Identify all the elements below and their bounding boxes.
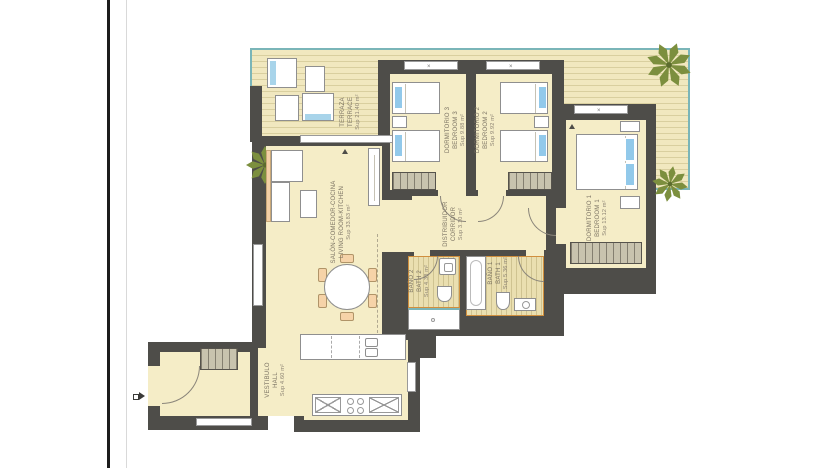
room-area: Sup 3.10 m² [458, 201, 465, 246]
room-label-bedroom2: DORMITORIO 2 BEDROOM 2 Sup 9.92 m² [474, 107, 498, 153]
bedroom3-window [404, 61, 458, 70]
room-name-es: BAÑO 2 [408, 265, 416, 297]
dining-table [324, 264, 370, 310]
wardrobe [392, 172, 436, 190]
room-area: Sup 9.88 m² [460, 107, 467, 153]
sink-basin [444, 263, 453, 272]
room-name-es: BAÑO 1 [487, 257, 495, 289]
entry-marker [133, 394, 139, 400]
corridor-opening [378, 200, 416, 252]
room-name-es: TERRAZA [339, 94, 347, 129]
orientation-arrow [342, 149, 348, 154]
window-mark: × [509, 64, 513, 70]
floor-plan-page: × × × [0, 0, 819, 468]
room-area: Sup 5.36 m² [503, 257, 510, 289]
room-name-en: CORRIDOR [450, 201, 458, 246]
room-label-bedroom3: DORMITORIO 3 BEDROOM 3 Sup 9.88 m² [444, 107, 468, 153]
nightstand [620, 196, 640, 209]
page-edge-line [126, 0, 127, 468]
bed-line [405, 84, 406, 113]
room-name-es: DORMITORIO 1 [586, 195, 594, 241]
room-name-es: SALÓN-COMEDOR-COCINA [330, 180, 338, 263]
room-label-terrace: TERRAZA TERRACE Sup 21.40 m² [339, 94, 363, 129]
room-area: Sup 13.12 m² [602, 195, 609, 241]
sun-lounger [267, 58, 297, 88]
kitchen-sink [365, 348, 378, 357]
nightstand [620, 121, 640, 132]
counter-divider [331, 336, 332, 358]
room-label-bath2: BAÑO 2 BATH 2 Sup 4.38 m² [408, 265, 432, 297]
room-name-en: BEDROOM 3 [452, 107, 460, 153]
orientation-arrow [569, 124, 575, 129]
hob-burner [357, 407, 364, 414]
bedroom1-window [574, 105, 628, 114]
page-divider-line [107, 0, 110, 468]
bed-line [405, 132, 406, 161]
coffee-table [300, 190, 317, 218]
toilet [496, 292, 510, 310]
bed-pillow [394, 86, 403, 109]
room-area: Sup 9.92 m² [490, 107, 497, 153]
fridge [315, 397, 341, 413]
counter-divider [359, 336, 360, 358]
nightstand [392, 116, 407, 128]
tv-unit-line [374, 155, 375, 201]
living-window [253, 244, 263, 306]
hall-window [196, 418, 252, 426]
room-name-en: BEDROOM 1 [594, 195, 602, 241]
tv-unit [368, 148, 380, 206]
room-name-en: HALL [272, 362, 280, 397]
room-name-en: BEDROOM 2 [482, 107, 490, 153]
shower-drain [431, 318, 435, 322]
kitchen-sink [365, 338, 378, 347]
palm-tree-icon [646, 42, 692, 88]
oven [369, 397, 399, 413]
wardrobe [508, 172, 552, 190]
window-mark: × [597, 108, 601, 114]
wall-terrace-side [250, 86, 262, 142]
sink-basin [522, 301, 530, 309]
lounger-cushion [270, 61, 276, 85]
kitchen-counter [300, 334, 406, 360]
room-name-es: DORMITORIO 2 [474, 107, 482, 153]
hob-burner [357, 398, 364, 405]
bathroom-sink [514, 298, 536, 311]
bedroom1-door-opening [556, 208, 566, 244]
room-name-en: BATH 2 [416, 265, 424, 297]
room-name-es: DORMITORIO 3 [444, 107, 452, 153]
hob-burner [347, 407, 354, 414]
lounger-cushion [305, 114, 331, 120]
wardrobe [200, 348, 238, 370]
room-label-hall: VESTIBULO HALL Sup 4.60 m² [264, 362, 288, 397]
room-label-living: SALÓN-COMEDOR-COCINA LIVING ROOM-KITCHEN… [330, 180, 354, 263]
bed-pillow [394, 134, 403, 157]
toilet [437, 286, 452, 302]
palm-tree-icon [652, 166, 688, 202]
bed-line [535, 132, 536, 161]
room-area: Sup 33.83 m² [346, 180, 353, 263]
room-name-en: TERRACE [347, 94, 355, 129]
bed-pillow [538, 86, 547, 109]
kitchen-counter [312, 394, 402, 416]
entry-door-opening [148, 366, 162, 406]
sofa [271, 182, 290, 222]
room-name-es: DISTRIBUIDOR [442, 201, 450, 246]
nightstand [534, 116, 549, 128]
room-name-en: LIVING ROOM-KITCHEN [338, 180, 346, 263]
bed-pillow [625, 163, 635, 186]
bed-pillow [538, 134, 547, 157]
room-label-bath1: BAÑO 1 BATH 1 Sup 5.36 m² [487, 257, 511, 289]
dining-chair [340, 312, 354, 321]
room-area: Sup 4.38 m² [424, 265, 431, 297]
kitchen-window [407, 362, 416, 392]
bathtub [466, 256, 486, 310]
sun-lounger [302, 93, 334, 121]
dining-chair [368, 268, 377, 282]
room-name-en: BATH 1 [495, 257, 503, 289]
terrace-table [305, 66, 325, 92]
bed-pillow [625, 138, 635, 161]
room-area: Sup 4.60 m² [280, 362, 287, 397]
shower-tray [408, 308, 460, 330]
entry-arrow-icon [139, 392, 145, 400]
room-label-bedroom1: DORMITORIO 1 BEDROOM 1 Sup 13.12 m² [586, 195, 610, 241]
hob-burner [347, 398, 354, 405]
bed-line [535, 84, 536, 113]
room-name-es: VESTIBULO [264, 362, 272, 397]
wardrobe [570, 242, 642, 264]
dining-chair [368, 294, 377, 308]
window-mark: × [427, 64, 431, 70]
sofa [271, 150, 303, 182]
terrace-stool [275, 95, 299, 121]
bedroom2-window [486, 61, 540, 70]
kitchen-zone-dashed-line [377, 234, 378, 338]
bathroom-sink [439, 258, 456, 275]
room-area: Sup 21.40 m² [355, 94, 362, 129]
bathtub-basin [470, 260, 482, 306]
room-label-corridor: DISTRIBUIDOR CORRIDOR Sup 3.10 m² [442, 201, 466, 246]
